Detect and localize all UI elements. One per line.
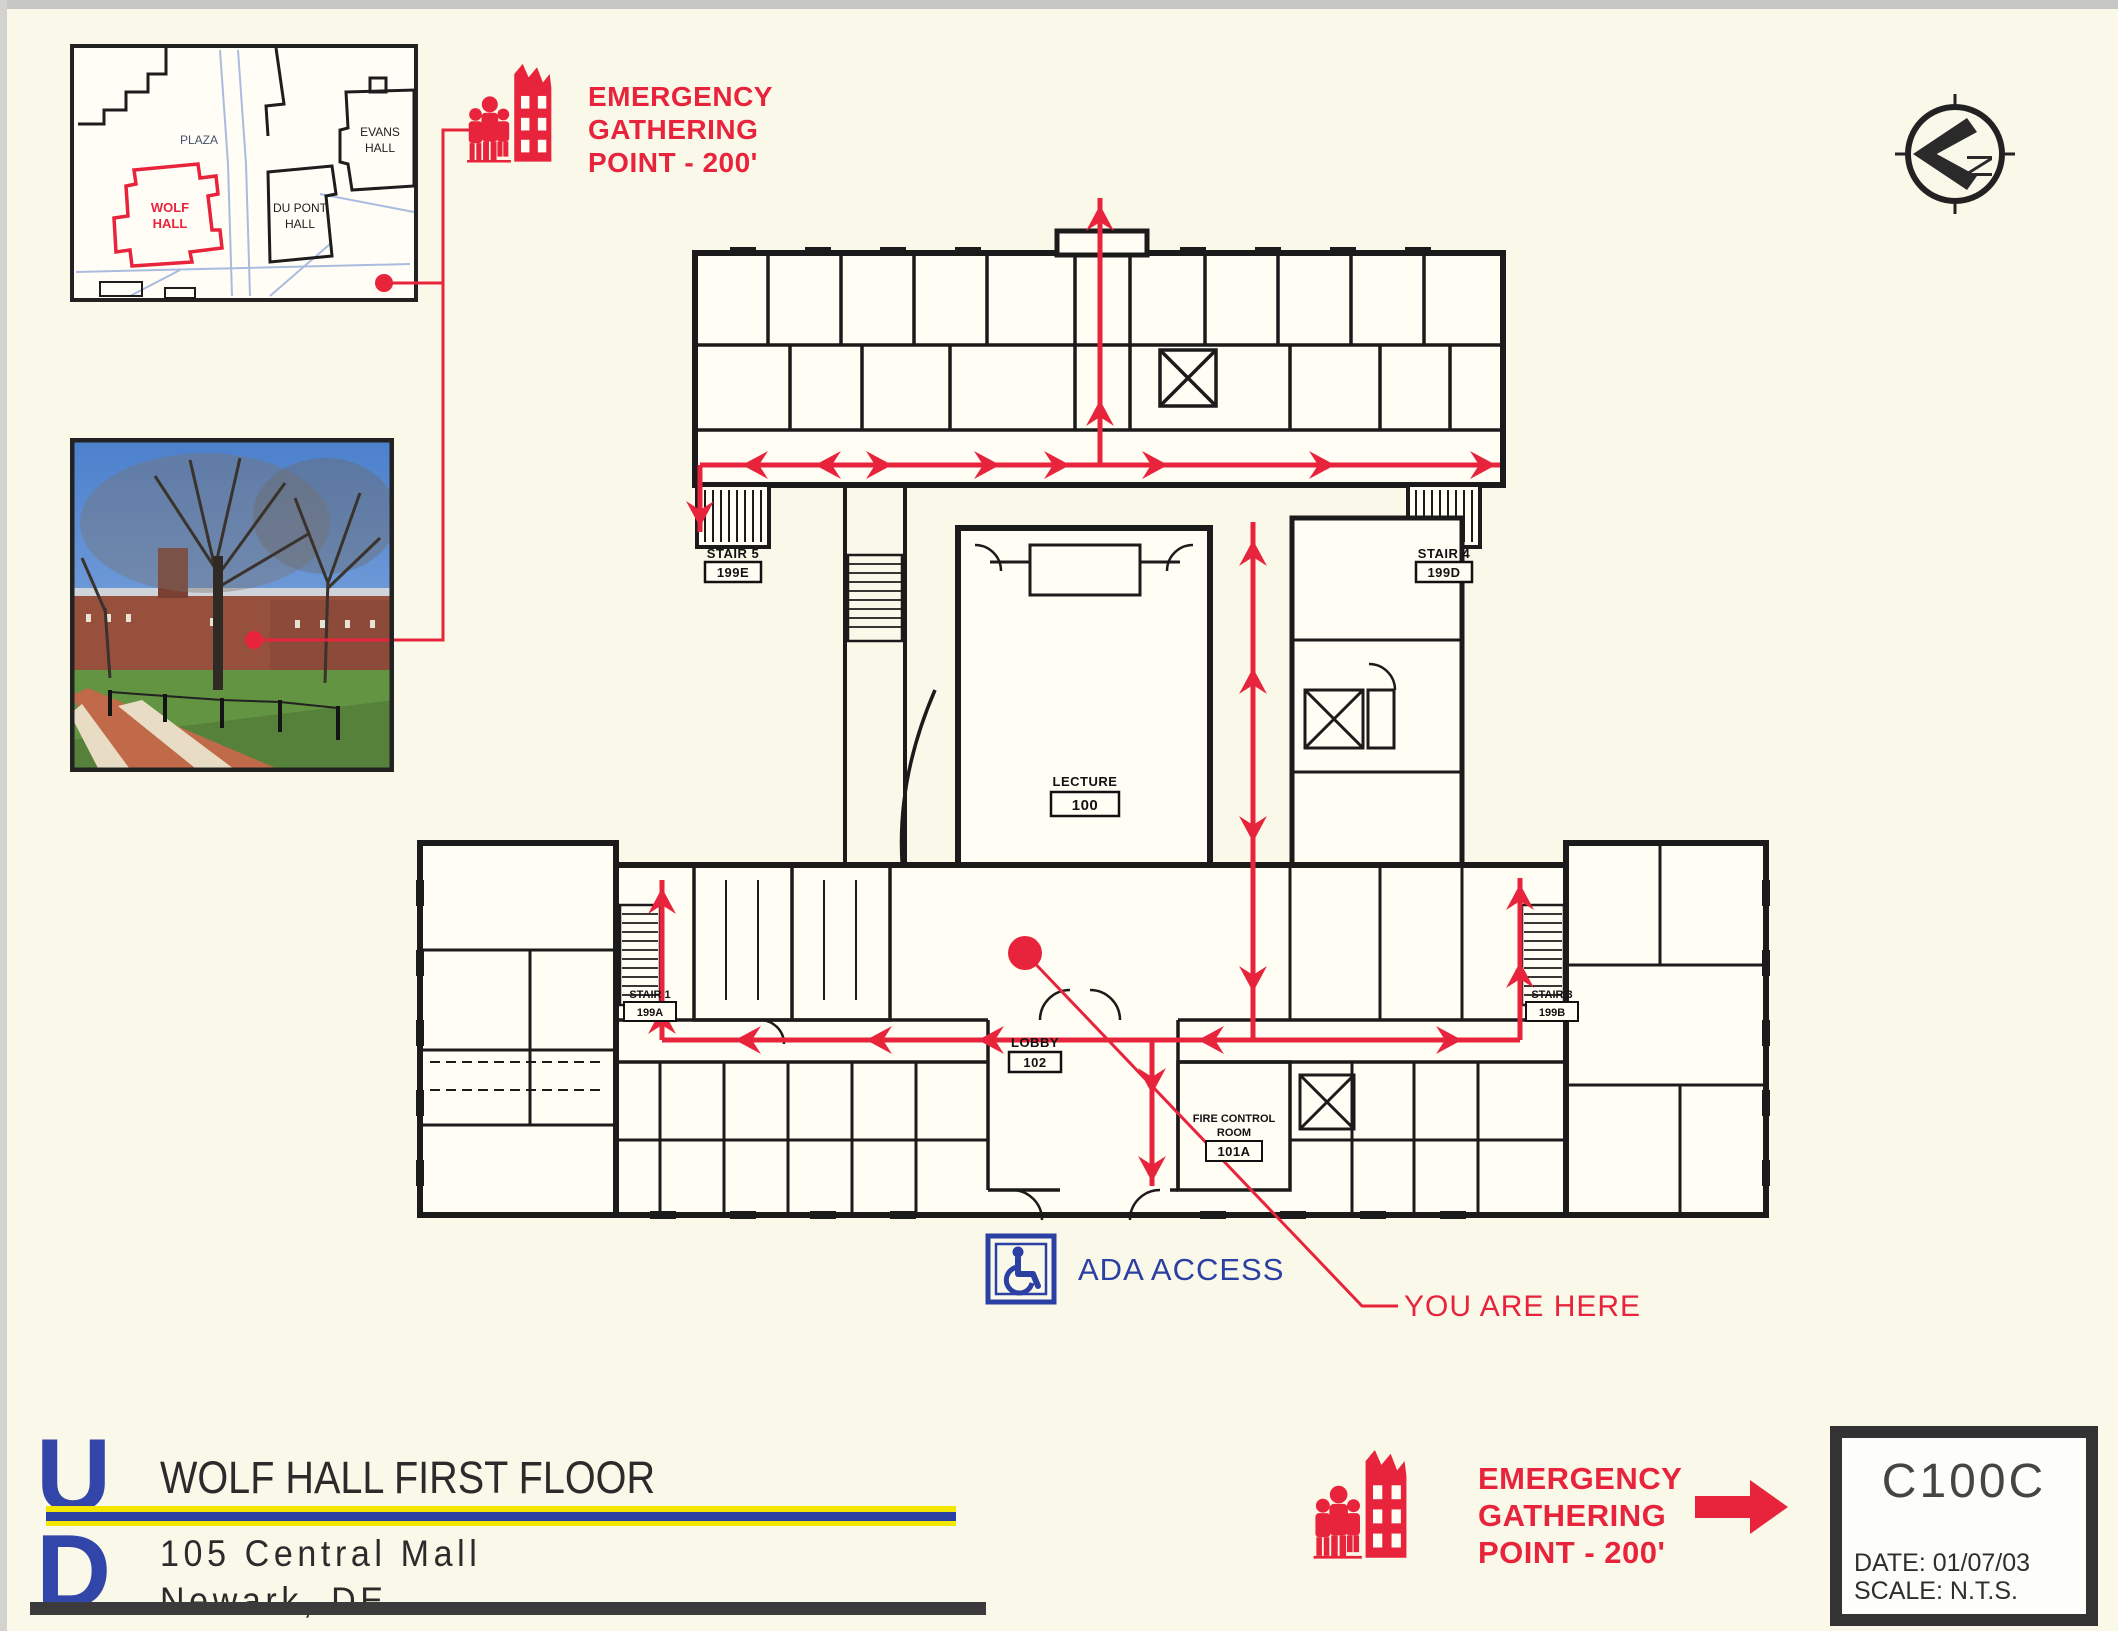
gathering-direction-arrow	[1695, 1480, 1788, 1534]
legend-top: EMERGENCY GATHERING POINT - 200'	[588, 80, 773, 179]
ada-access-label: ADA ACCESS	[1078, 1252, 1284, 1288]
ada-access-icon	[988, 1236, 1054, 1302]
legend-top-line2: GATHERING	[588, 113, 773, 146]
stair3-label: STAIR 3	[1531, 989, 1572, 1001]
address-line1: 105 Central Mall	[160, 1530, 481, 1577]
lobby-number: 102	[1023, 1055, 1046, 1070]
you-are-here-label: YOU ARE HERE	[1404, 1290, 1641, 1324]
legend-top-line1: EMERGENCY	[588, 80, 773, 113]
legend-top-line3: POINT - 200'	[588, 146, 773, 179]
fire-control-number: 101A	[1217, 1144, 1250, 1159]
legend-bottom: EMERGENCY GATHERING POINT - 200'	[1478, 1460, 1682, 1571]
emergency-gathering-icon-top	[467, 64, 551, 163]
date-label: DATE:	[1854, 1549, 1926, 1577]
building-walls	[416, 231, 1770, 1220]
footer-bar	[30, 1602, 986, 1615]
north-arrow-icon: N	[1895, 94, 2015, 214]
sheet-number: C100C	[1842, 1454, 2086, 1509]
you-are-here-dot	[1008, 936, 1042, 970]
emergency-gathering-icon-bottom	[1314, 1450, 1407, 1559]
scale-row: SCALE: N.T.S.	[1854, 1577, 2018, 1606]
scale-label: SCALE:	[1854, 1577, 1943, 1605]
lecture-number: 100	[1072, 797, 1099, 814]
floor-plan-drawing: LECTURE 100 STAIR 5 199E STAIR 4 199D ST…	[0, 0, 2118, 1631]
stair5-label: STAIR 5	[707, 546, 759, 561]
stair5-number: 199E	[717, 565, 749, 580]
stair1-label: STAIR 1	[629, 989, 670, 1001]
stair3-number: 199B	[1539, 1007, 1565, 1019]
north-letter: N	[1959, 153, 2000, 179]
lobby-label: LOBBY	[1011, 1035, 1059, 1050]
legend-bottom-line3: POINT - 200'	[1478, 1534, 1682, 1571]
fire-control-label-2: ROOM	[1217, 1127, 1251, 1139]
lecture-label: LECTURE	[1053, 774, 1118, 789]
stair1-number: 199A	[637, 1007, 663, 1019]
title-block: C100C DATE: 01/07/03 SCALE: N.T.S.	[1830, 1426, 2098, 1626]
divider-blue	[46, 1512, 956, 1521]
evacuation-map-page: PLAZA WOLF HALL DU PONT HALL EVANS HALL	[0, 0, 2118, 1631]
date-row: DATE: 01/07/03	[1854, 1549, 2030, 1578]
divider-yellow-bottom	[46, 1521, 956, 1526]
fire-control-label-1: FIRE CONTROL	[1193, 1113, 1276, 1125]
legend-bottom-line2: GATHERING	[1478, 1497, 1682, 1534]
legend-leader-lines	[394, 130, 470, 640]
date-value: 01/07/03	[1933, 1549, 2030, 1577]
building-title: WOLF HALL FIRST FLOOR	[160, 1452, 655, 1504]
stair4-label: STAIR 4	[1418, 546, 1471, 561]
legend-bottom-line1: EMERGENCY	[1478, 1460, 1682, 1497]
scale-value: N.T.S.	[1950, 1577, 2018, 1605]
stair4-number: 199D	[1427, 565, 1460, 580]
address-line2: Newark, DE	[160, 1577, 481, 1624]
